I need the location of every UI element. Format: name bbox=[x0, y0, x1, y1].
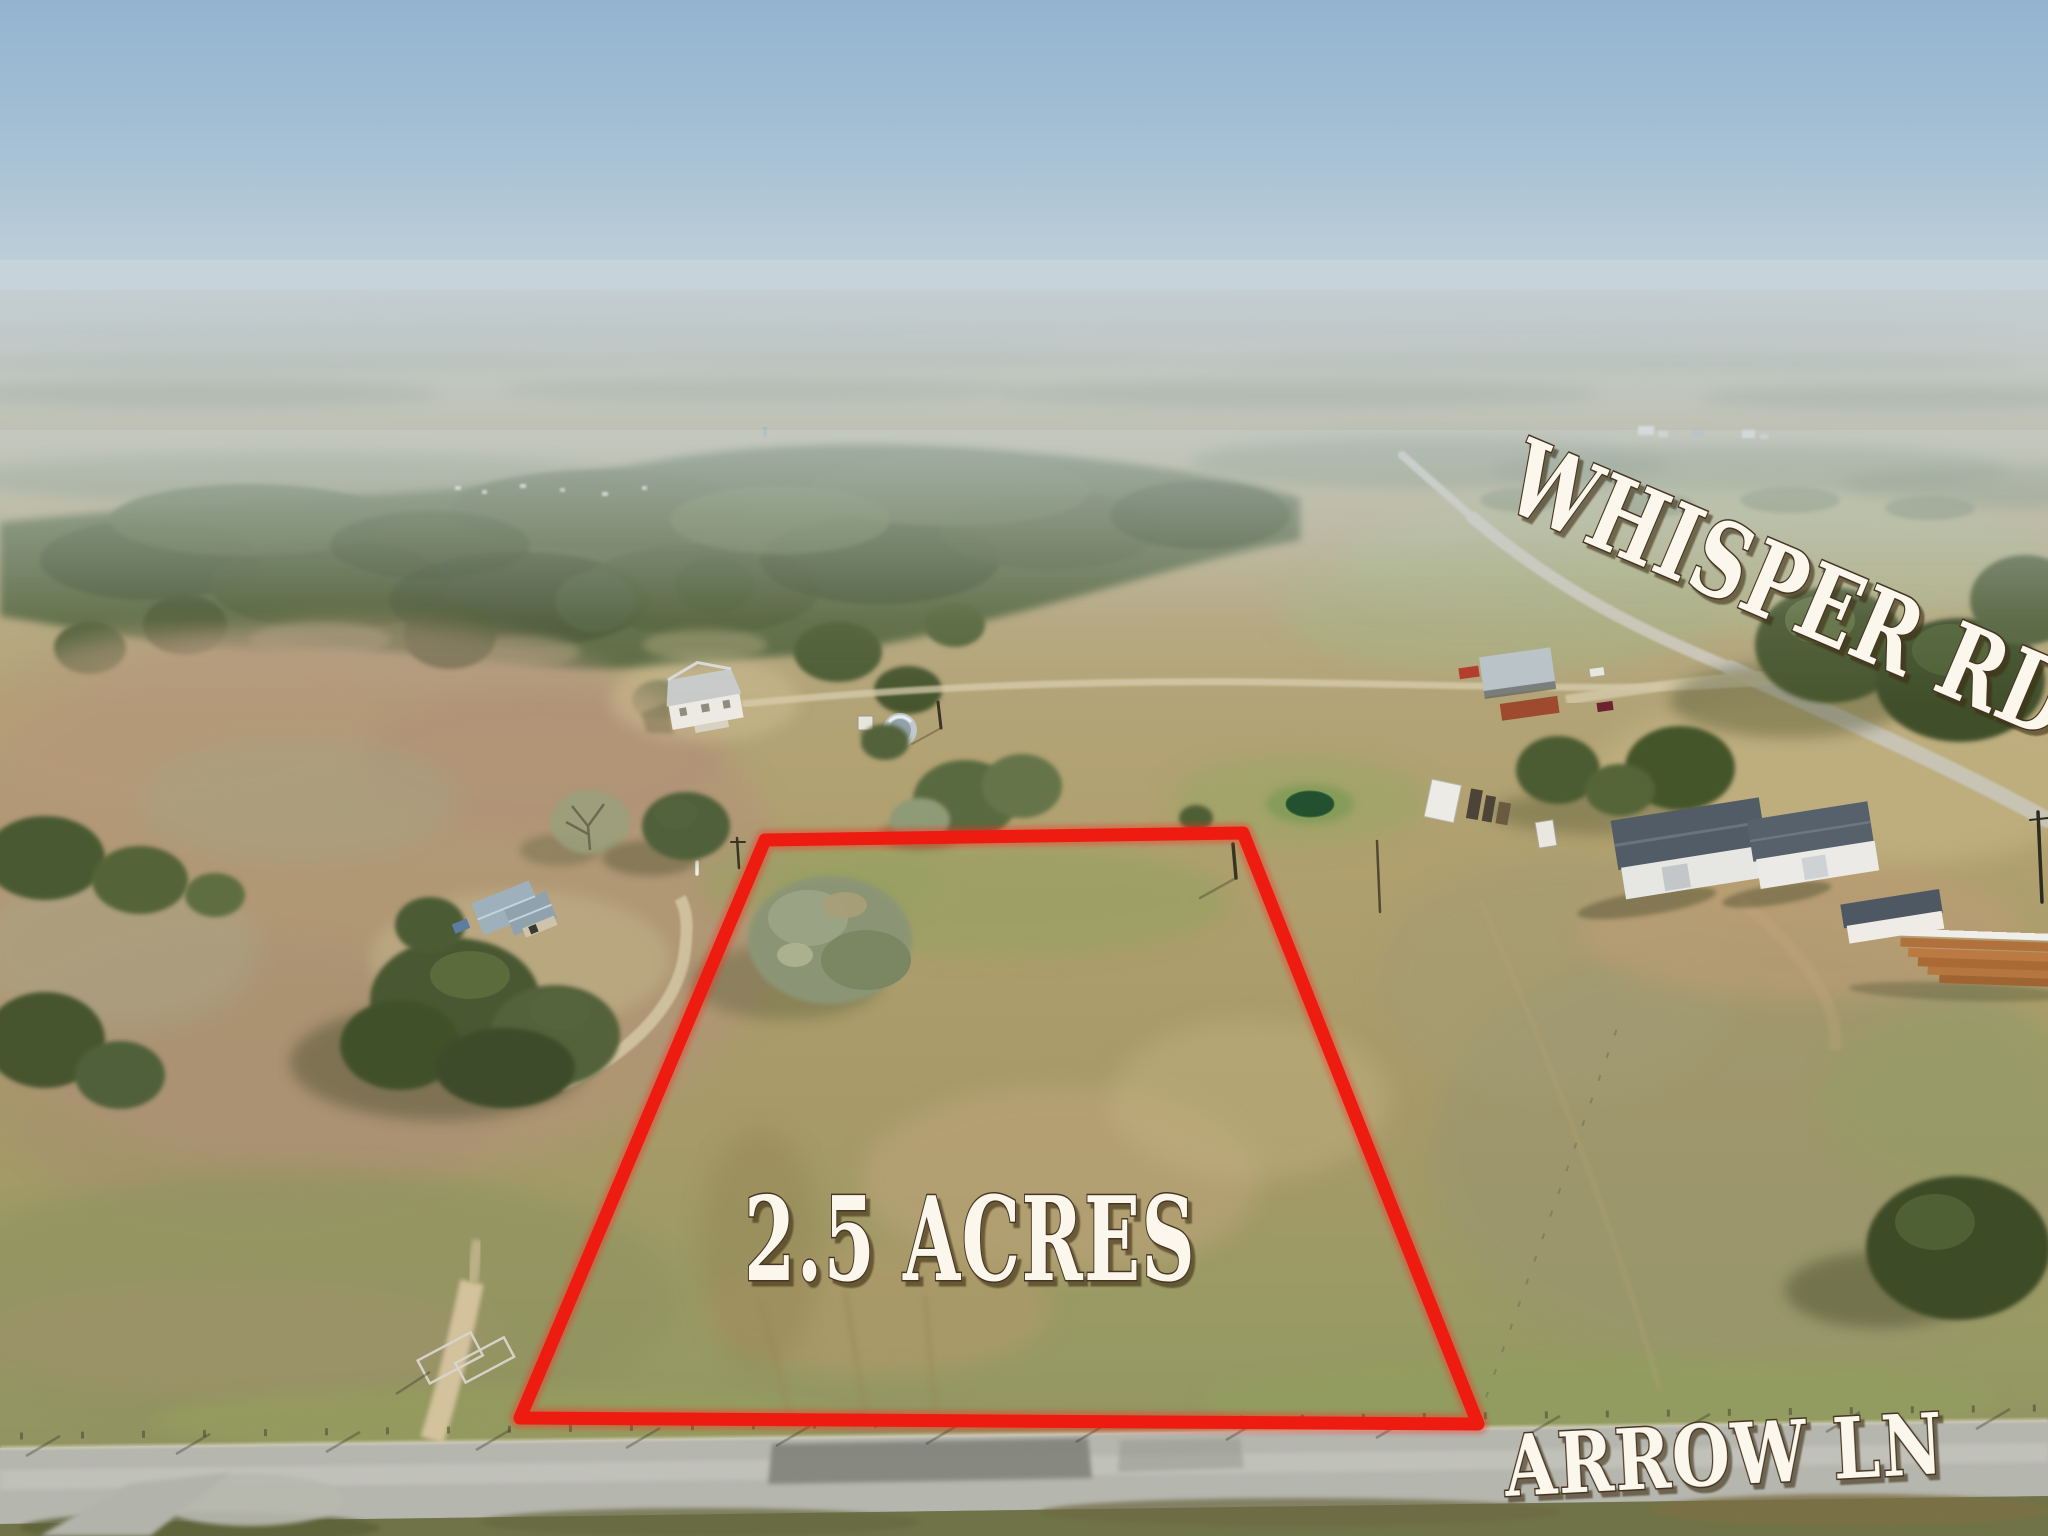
white-shed bbox=[1535, 820, 1557, 848]
pond bbox=[1266, 784, 1354, 824]
lot-size-label: 2.5 ACRES bbox=[744, 1172, 1196, 1308]
aerial-photo: WHISPER RD 2.5 ACRES ARROW LN bbox=[0, 0, 2048, 1536]
aerial-photo-canvas: WHISPER RD 2.5 ACRES ARROW LN bbox=[0, 0, 2048, 1536]
road-patch bbox=[768, 1438, 1092, 1484]
